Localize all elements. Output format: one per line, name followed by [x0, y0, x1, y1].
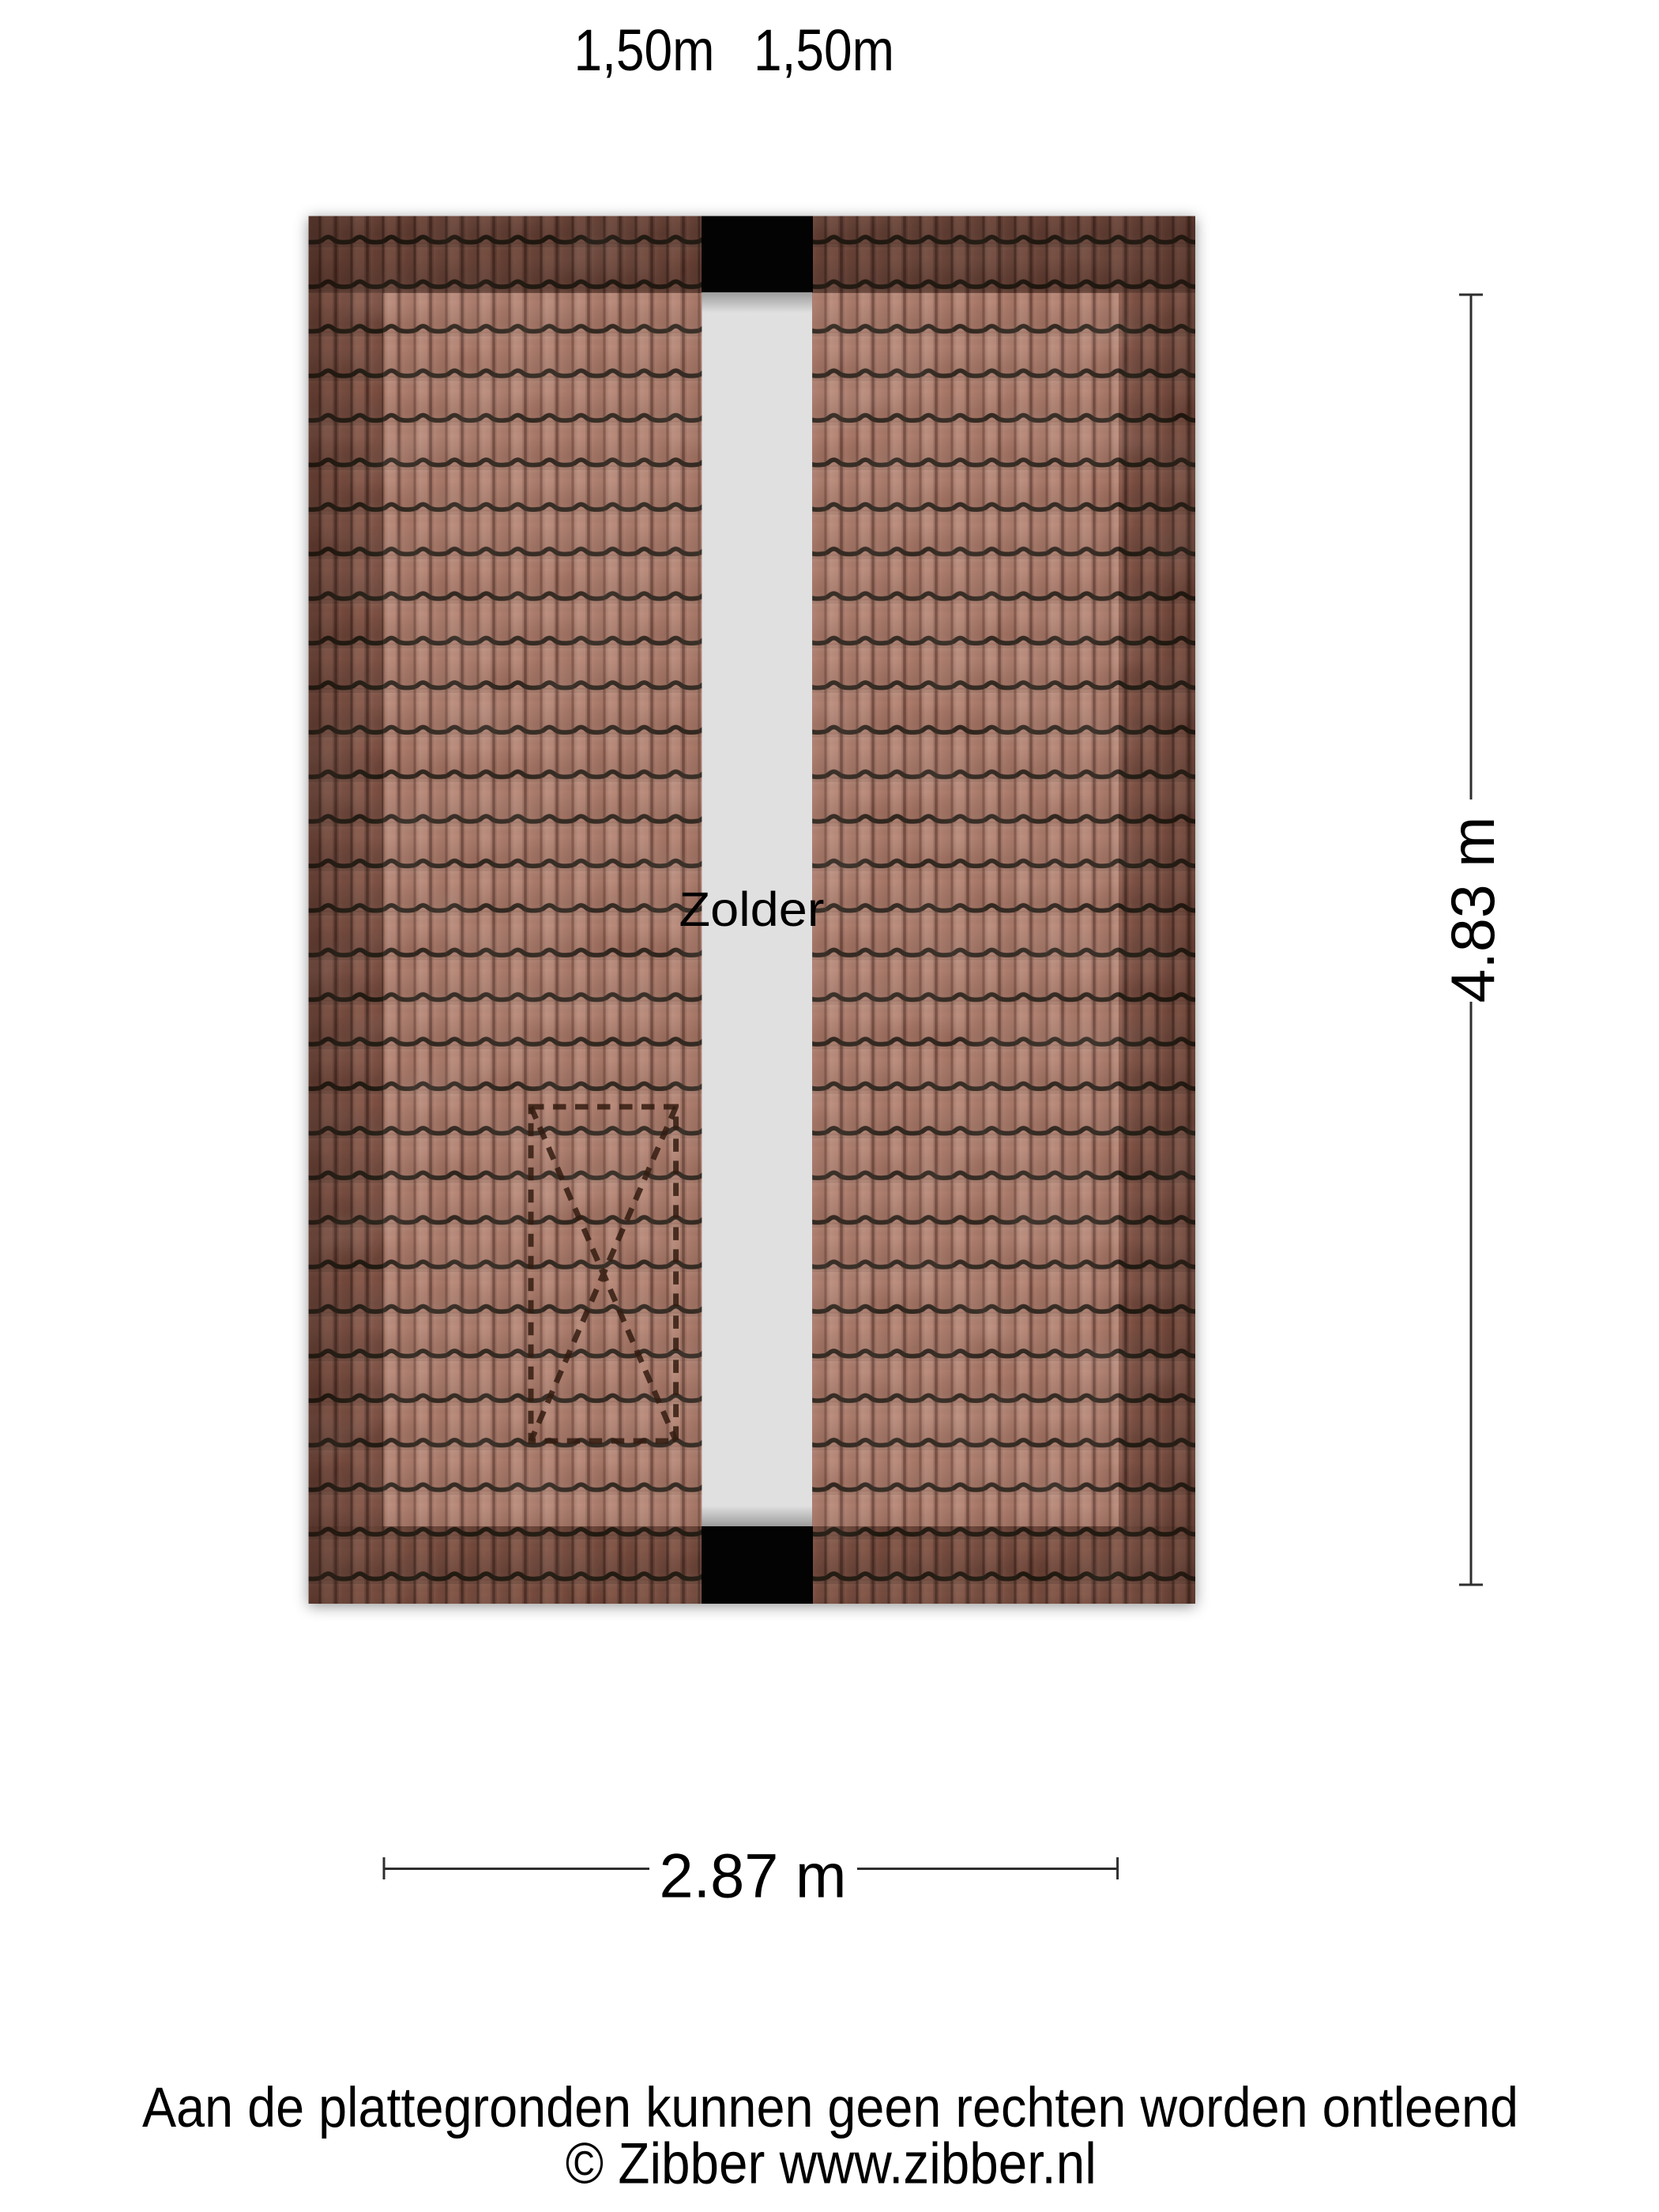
svg-text:Aan de plattegronden kunnen ge: Aan de plattegronden kunnen geen rechten…: [142, 2077, 1518, 2139]
svg-text:2.87 m: 2.87 m: [660, 1841, 847, 1911]
svg-text:© Zibber www.zibber.nl: © Zibber www.zibber.nl: [566, 2131, 1097, 2195]
svg-text:Zolder: Zolder: [679, 882, 825, 937]
svg-text:1,50m: 1,50m: [574, 17, 715, 83]
svg-text:4.83 m: 4.83 m: [1438, 817, 1507, 1003]
svg-text:1,50m: 1,50m: [754, 17, 894, 83]
